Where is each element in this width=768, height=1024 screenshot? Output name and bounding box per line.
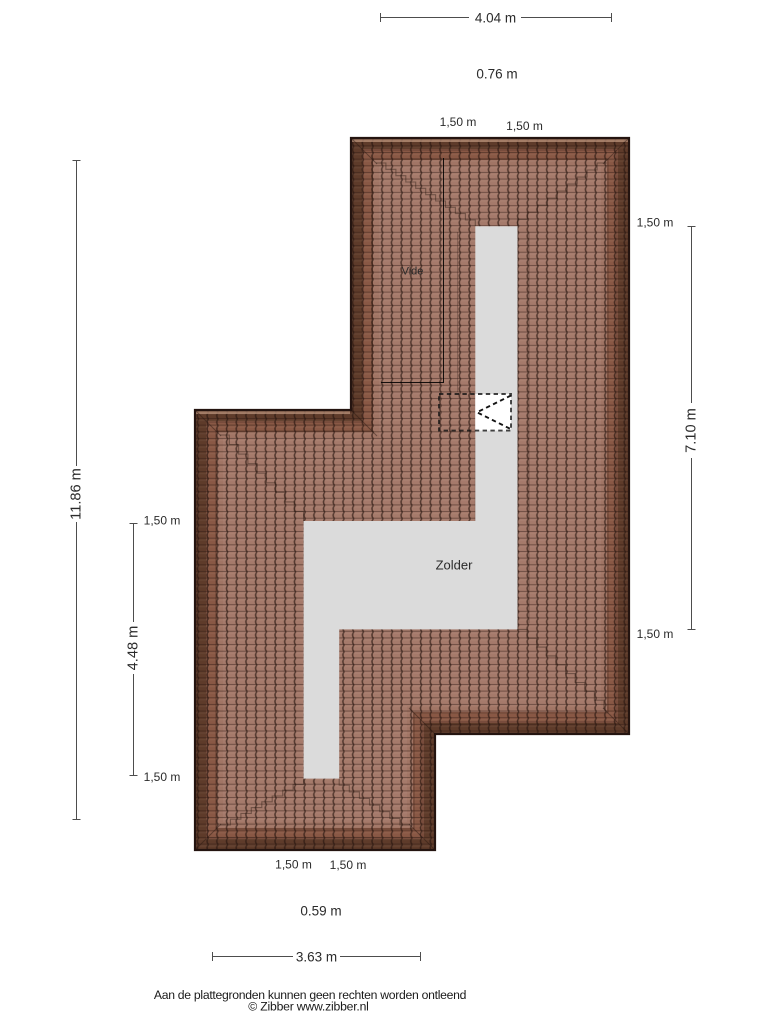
svg-text:4.48 m: 4.48 m [126,626,142,671]
svg-text:1,50 m: 1,50 m [506,119,543,133]
svg-text:0.76 m: 0.76 m [476,67,517,82]
svg-text:1,50 m: 1,50 m [144,770,181,784]
svg-text:3.63 m: 3.63 m [296,950,337,965]
svg-text:1,50 m: 1,50 m [637,627,674,641]
svg-text:11.86 m: 11.86 m [69,468,85,520]
svg-text:1,50 m: 1,50 m [330,858,367,872]
svg-text:1,50 m: 1,50 m [637,216,674,230]
svg-text:1,50 m: 1,50 m [440,115,477,129]
svg-text:4.04 m: 4.04 m [475,11,516,26]
svg-text:Vide: Vide [402,266,424,278]
svg-text:1,50 m: 1,50 m [144,514,181,528]
svg-text:© Zibber www.zibber.nl: © Zibber www.zibber.nl [248,1000,368,1014]
svg-text:0.59 m: 0.59 m [300,904,341,919]
svg-text:Zolder: Zolder [436,558,474,573]
svg-text:1,50 m: 1,50 m [275,858,312,872]
svg-text:7.10 m: 7.10 m [684,408,700,453]
